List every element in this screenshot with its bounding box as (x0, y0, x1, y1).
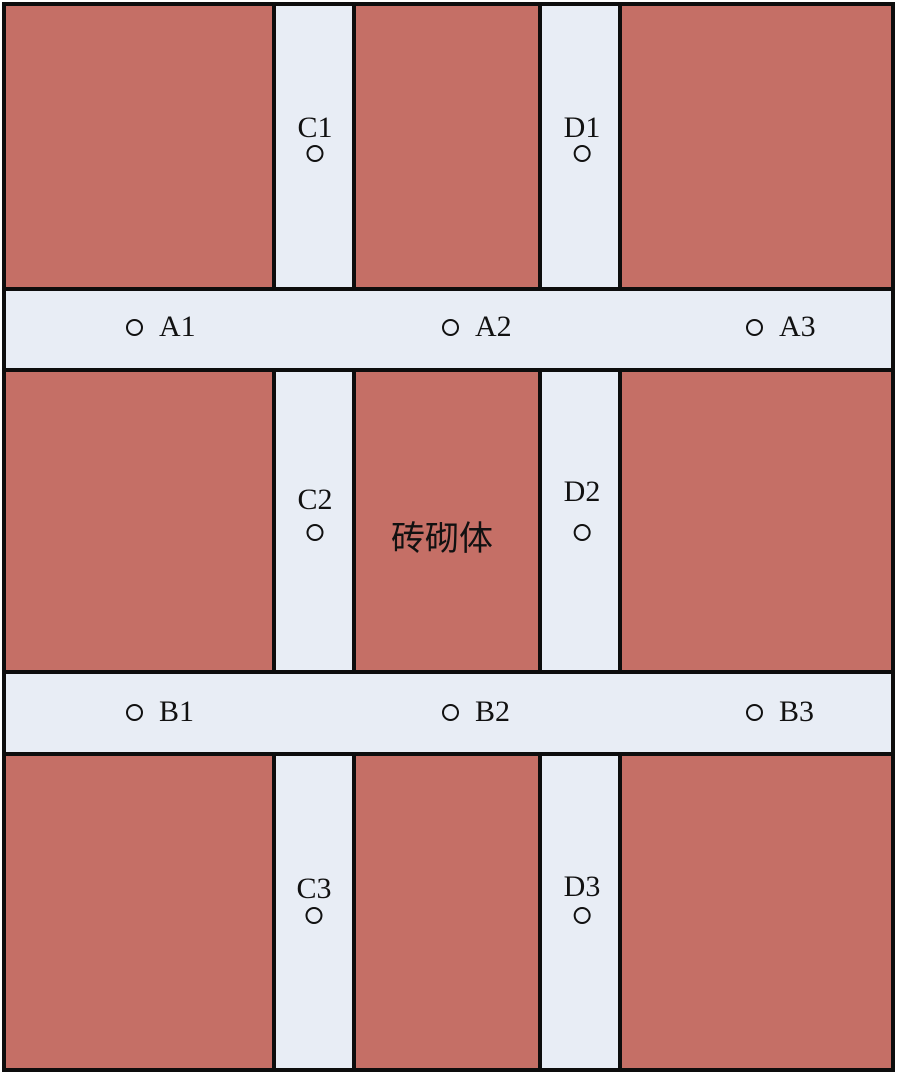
point-label: D1 (564, 113, 601, 143)
circle-marker-icon (306, 524, 323, 541)
masonry-wall-diagram: A1 A2 A3 B1 B2 B3 C1 C2 (2, 2, 895, 1072)
point-label: B1 (159, 697, 194, 727)
circle-marker-icon (573, 524, 590, 541)
circle-marker-icon (746, 704, 763, 721)
point-label: A2 (475, 312, 512, 342)
circle-marker-icon (126, 704, 143, 721)
circle-marker-icon (442, 704, 459, 721)
point-label: C3 (296, 874, 331, 904)
point-label: A3 (779, 312, 816, 342)
measurement-point-b2: B2 (442, 697, 510, 727)
measurement-point-a3: A3 (746, 312, 816, 342)
circle-marker-icon (573, 907, 590, 924)
circle-marker-icon (442, 319, 459, 336)
measurement-point-c3: C3 (296, 874, 331, 924)
measurement-point-c1: C1 (297, 113, 332, 162)
circle-marker-icon (746, 319, 763, 336)
point-label: B2 (475, 697, 510, 727)
circle-marker-icon (305, 907, 322, 924)
measurement-point-d2: D2 (564, 477, 601, 541)
measurement-point-d1: D1 (564, 113, 601, 162)
measurement-point-b1: B1 (126, 697, 194, 727)
measurement-point-a1: A1 (126, 312, 196, 342)
masonry-center-label: 砖砌体 (391, 523, 493, 557)
measurement-point-a2: A2 (442, 312, 512, 342)
measurement-point-b3: B3 (746, 697, 814, 727)
point-label: C1 (297, 113, 332, 143)
circle-marker-icon (306, 145, 323, 162)
point-label: D2 (564, 477, 601, 507)
circle-marker-icon (573, 145, 590, 162)
measurement-point-d3: D3 (564, 872, 601, 924)
circle-marker-icon (126, 319, 143, 336)
measurement-point-c2: C2 (297, 485, 332, 541)
point-label: D3 (564, 872, 601, 902)
point-label: C2 (297, 485, 332, 515)
point-label: A1 (159, 312, 196, 342)
diagram-page: A1 A2 A3 B1 B2 B3 C1 C2 (0, 0, 897, 1074)
point-label: B3 (779, 697, 814, 727)
